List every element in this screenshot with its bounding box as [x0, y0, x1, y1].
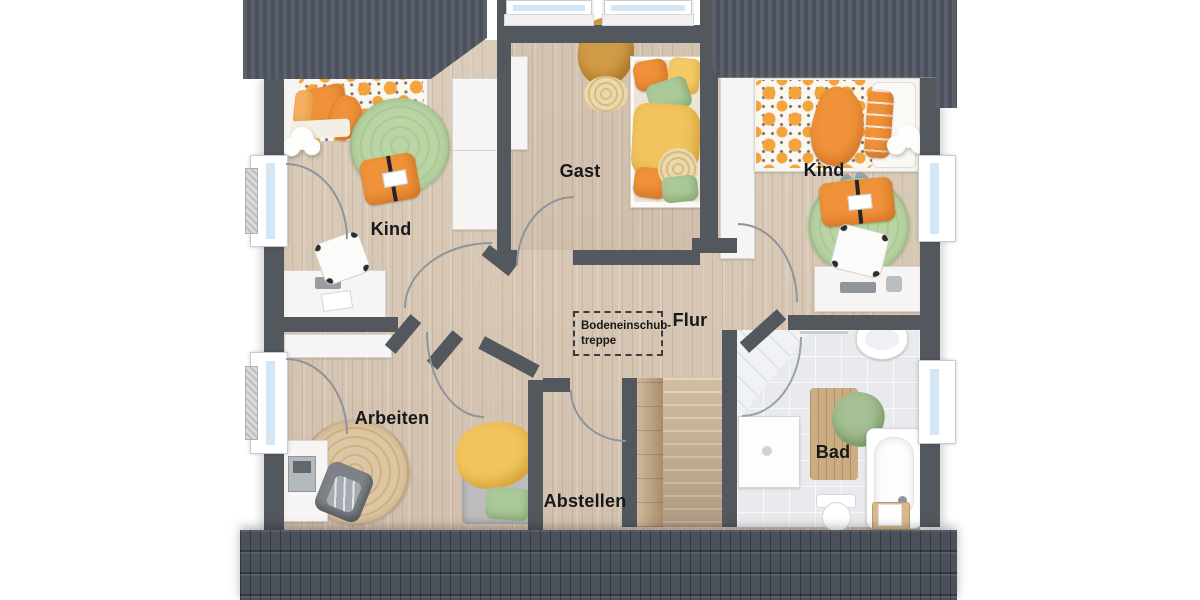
keyboard-right [840, 282, 876, 293]
wall-gast-flur-a [502, 250, 517, 265]
wall-left-upper [264, 77, 284, 160]
wall-right-lower [920, 437, 940, 527]
room-label-gast: Gast [535, 162, 625, 180]
sideboard [284, 334, 392, 358]
wall-gast-top [500, 25, 712, 43]
cushion-tag [382, 169, 408, 188]
window-gast-1-sill [504, 14, 594, 26]
radiator-kind-left [245, 168, 258, 234]
guest-pillow-green2 [661, 174, 700, 204]
floor-plan: Kind Gast Kind Arbeiten Abstellen Flur B… [0, 0, 1200, 600]
wall-abstellen-top-a [543, 378, 570, 392]
radiator-arbeiten [245, 366, 258, 440]
stool-towel [878, 504, 902, 526]
room-label-bad: Bad [800, 443, 866, 461]
cloud-shelf [280, 125, 320, 157]
floor-cushion-right [818, 176, 896, 227]
room-label-arbeiten: Arbeiten [330, 409, 454, 427]
loft-hatch-label-line1: Bodeneinschub- [581, 319, 661, 334]
window-bad-glass [929, 368, 940, 436]
cushion-tag [847, 193, 872, 210]
shower-drain [762, 446, 772, 456]
wall-kindleft-gast [497, 0, 511, 262]
staircase [663, 378, 722, 527]
loft-hatch-box: Bodeneinschub- treppe [573, 311, 663, 356]
toilet-bowl [822, 502, 851, 532]
wall-left-lower [264, 450, 284, 530]
floor-cushion [358, 151, 421, 206]
room-label-abstellen: Abstellen [520, 492, 650, 510]
desk-item-right [886, 276, 902, 292]
window-arbeiten-glass [265, 360, 276, 446]
window-gast-2-sill [602, 14, 694, 26]
wall-bad-top [788, 315, 920, 330]
wall-stairs-bad [722, 330, 737, 527]
room-label-kind-left: Kind [346, 220, 436, 238]
wall-left-mid [264, 240, 284, 355]
window-kind-right-glass [929, 162, 940, 235]
laptop [288, 456, 316, 492]
wall-gast-flur-b [573, 250, 700, 265]
window-gast-2-glass [610, 4, 686, 12]
window-gast-1-glass [512, 4, 586, 12]
wardrobe [452, 78, 498, 230]
window-kind-left-glass [265, 162, 276, 240]
wall-right-mid [920, 235, 940, 365]
loft-hatch-label-line2: treppe [581, 334, 661, 349]
wall-kindleft-flur [282, 317, 398, 332]
basket [584, 76, 628, 112]
room-label-kind-right: Kind [779, 161, 869, 179]
roof-eave-bottom [240, 530, 957, 600]
wardrobe-split [452, 150, 496, 151]
